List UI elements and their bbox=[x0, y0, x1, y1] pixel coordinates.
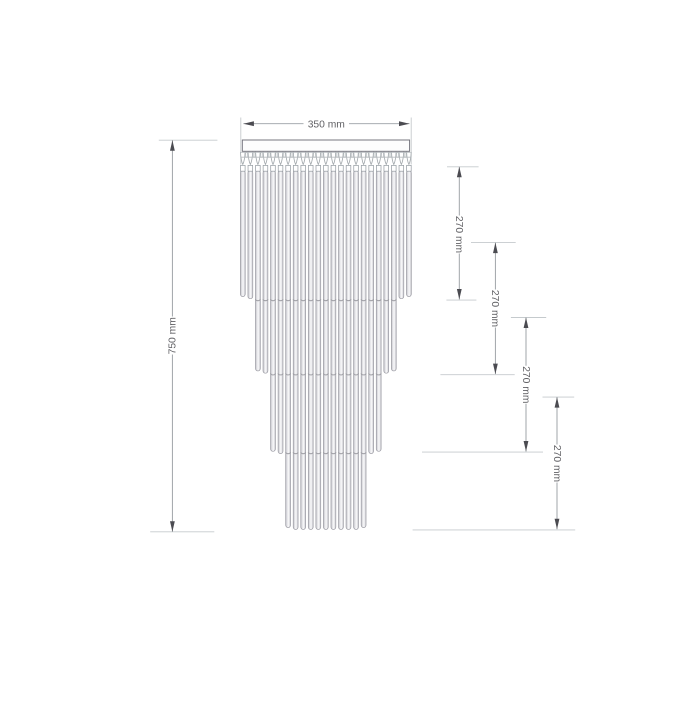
svg-text:350 mm: 350 mm bbox=[308, 119, 345, 130]
svg-text:270 mm: 270 mm bbox=[520, 366, 531, 403]
svg-text:270 mm: 270 mm bbox=[489, 290, 500, 327]
svg-text:750 mm: 750 mm bbox=[168, 317, 179, 354]
svg-text:270 mm: 270 mm bbox=[551, 445, 562, 482]
svg-text:270 mm: 270 mm bbox=[453, 216, 464, 253]
